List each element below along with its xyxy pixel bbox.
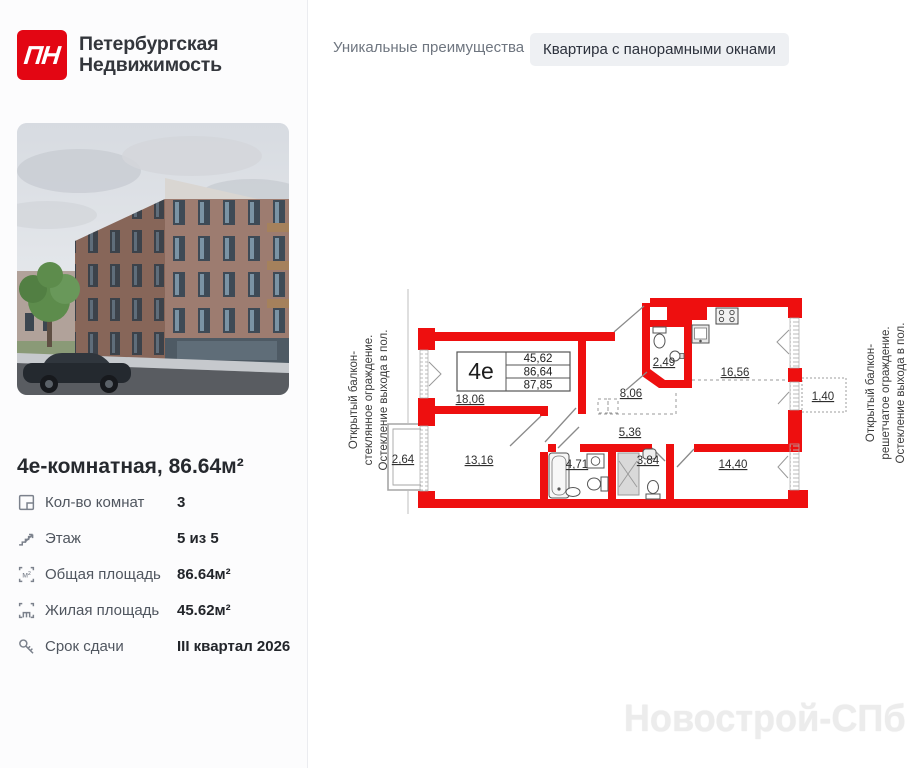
unit-type: 4е — [468, 358, 494, 384]
stairs-icon — [17, 529, 36, 548]
room-label: 2,64 — [392, 454, 415, 466]
room-label: 8,06 — [620, 388, 642, 400]
sidebar: ПН Петербургская Недвижимость — [0, 0, 308, 768]
room-label: 3,84 — [637, 455, 660, 467]
feature-badge[interactable]: Квартира с панорамными окнами — [530, 33, 789, 66]
detail-value: 3 — [177, 494, 185, 511]
room-label: 13,16 — [465, 455, 494, 467]
detail-row-floor: Этаж 5 из 5 — [17, 520, 293, 556]
detail-value: III квартал 2026 — [177, 638, 290, 655]
brand-logo[interactable]: ПН Петербургская Недвижимость — [17, 30, 222, 80]
room-label: 5,36 — [619, 427, 641, 439]
detail-row-total-area: м² Общая площадь 86.64м² — [17, 556, 293, 592]
detail-label: Кол-во комнат — [45, 494, 144, 511]
room-label: 14,40 — [719, 459, 748, 471]
floorplan-icon — [17, 493, 36, 512]
living-area-icon — [17, 601, 36, 620]
detail-label: Общая площадь — [45, 566, 161, 583]
wc-fixtures — [653, 327, 684, 361]
listing-title: 4е-комнатная, 86.64м² — [17, 455, 244, 479]
listing-details: Кол-во комнат 3 Этаж 5 из 5 м² — [17, 484, 293, 664]
total-area-icon: м² — [17, 565, 36, 584]
room-label: 1,40 — [812, 391, 834, 403]
brand-logo-icon: ПН — [17, 30, 67, 80]
area-total: 86,64 — [524, 367, 553, 379]
detail-value: 86.64м² — [177, 566, 231, 583]
area-living: 45,62 — [524, 353, 553, 365]
building-photo — [17, 123, 289, 395]
section-label: Уникальные преимущества — [333, 39, 524, 56]
detail-value: 5 из 5 — [177, 530, 219, 547]
unit-info-box: 4е 45,62 86,64 87,85 — [457, 352, 570, 392]
detail-row-living-area: Жилая площадь 45.62м² — [17, 592, 293, 628]
detail-value: 45.62м² — [177, 602, 231, 619]
detail-label: Жилая площадь — [45, 602, 159, 619]
balcony-left-note: Открытый балкон- стеклянное ограждение. … — [347, 315, 393, 485]
area-total-summer: 87,85 — [524, 380, 553, 392]
detail-row-rooms: Кол-во комнат 3 — [17, 484, 293, 520]
key-icon — [17, 637, 36, 656]
detail-row-completion: Срок сдачи III квартал 2026 — [17, 628, 293, 664]
room-label: 4,71 — [566, 459, 588, 471]
balcony-right-note: Открытый балкон- решетчатое ограждение. … — [864, 303, 910, 483]
room-label: 16,56 — [721, 367, 750, 379]
detail-label: Этаж — [45, 530, 81, 547]
svg-text:м²: м² — [22, 569, 31, 579]
building-illustration — [17, 123, 289, 395]
room-label: 2,49 — [653, 357, 675, 369]
floor-plan: 4е 45,62 86,64 87,85 18,06 8,06 2,49 16,… — [340, 285, 922, 525]
room-label: 18,06 — [456, 394, 485, 406]
detail-label: Срок сдачи — [45, 638, 124, 655]
watermark: Новострой-СПб — [624, 698, 906, 741]
brand-name: Петербургская Недвижимость — [79, 34, 222, 76]
